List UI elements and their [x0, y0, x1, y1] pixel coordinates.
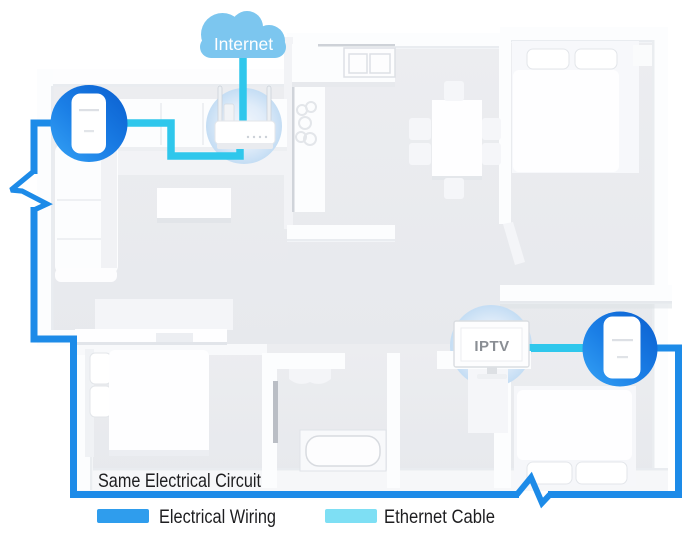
svg-text:Same Electrical Circuit: Same Electrical Circuit	[98, 470, 261, 492]
svg-text:Electrical Wiring: Electrical Wiring	[159, 507, 276, 528]
svg-text:Ethernet Cable: Ethernet Cable	[384, 507, 495, 528]
svg-text:Internet: Internet	[214, 34, 273, 54]
svg-text:IPTV: IPTV	[474, 338, 509, 355]
